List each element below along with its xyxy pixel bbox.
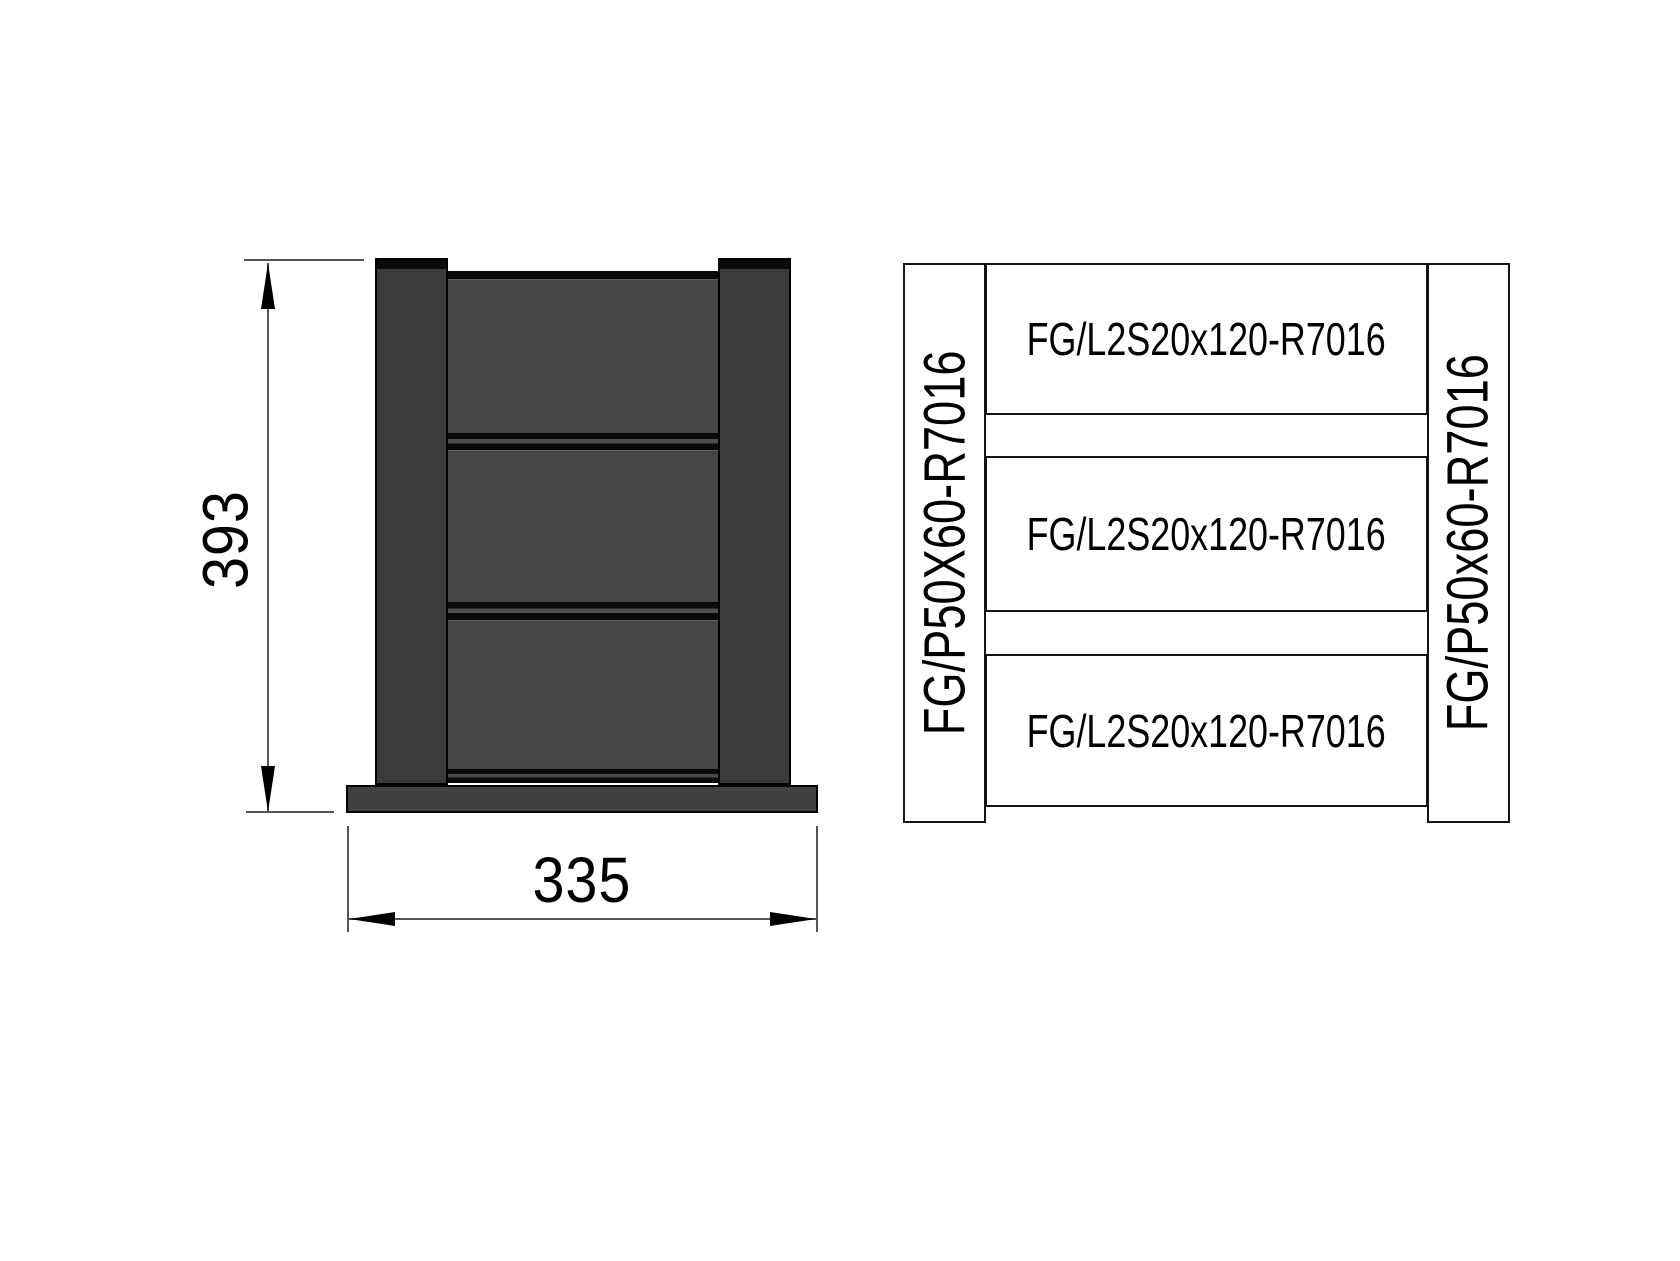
dim-width-arrow-right-icon bbox=[770, 912, 816, 926]
dim-width-line bbox=[348, 918, 816, 920]
schematic-post-right-label: FG/P50x60-R7016 bbox=[1427, 263, 1510, 823]
elevation-base-plate bbox=[346, 785, 818, 813]
schematic-rail-2: FG/L2S20x120-R7016 bbox=[985, 456, 1428, 612]
elevation-post-right bbox=[718, 258, 791, 785]
elevation-view: 393 335 bbox=[0, 0, 840, 960]
dim-width-arrow-left-icon bbox=[349, 912, 395, 926]
elevation-board-1 bbox=[448, 279, 718, 433]
dim-height-value: 393 bbox=[191, 491, 261, 590]
elevation-rail-2 bbox=[448, 602, 718, 620]
schematic-rail-1-label: FG/L2S20x120-R7016 bbox=[976, 312, 1436, 366]
dim-width-value: 335 bbox=[533, 849, 632, 911]
schematic-rail-1: FG/L2S20x120-R7016 bbox=[985, 263, 1428, 415]
dim-width-extension-right bbox=[816, 826, 818, 932]
elevation-post-left bbox=[375, 258, 448, 785]
schematic-rail-3: FG/L2S20x120-R7016 bbox=[985, 654, 1428, 807]
dim-height-arrow-up-icon bbox=[261, 263, 275, 309]
elevation-board-column bbox=[448, 271, 718, 783]
technical-drawing-canvas: 393 335 FG/L2S20x120-R7016 FG/L2S20x120-… bbox=[0, 0, 1680, 1261]
dim-height-line bbox=[267, 263, 269, 812]
post-cap-left bbox=[377, 260, 446, 269]
elevation-rail-1 bbox=[448, 433, 718, 450]
elevation-board-2 bbox=[448, 450, 718, 602]
elevation-bottom-rail bbox=[448, 769, 718, 783]
dim-height-arrow-down-icon bbox=[261, 766, 275, 812]
schematic-view: FG/L2S20x120-R7016 FG/L2S20x120-R7016 FG… bbox=[840, 0, 1680, 960]
dim-height-extension-top bbox=[244, 259, 364, 261]
post-cap-right bbox=[720, 260, 789, 269]
schematic-post-left-label: FG/P50X60-R7016 bbox=[904, 263, 987, 823]
dim-height-label: 393 bbox=[191, 463, 261, 618]
elevation-board-3 bbox=[448, 620, 718, 769]
schematic-rail-2-label: FG/L2S20x120-R7016 bbox=[976, 507, 1436, 561]
dim-width-label: 335 bbox=[482, 849, 682, 911]
dim-height-extension-bottom bbox=[246, 811, 334, 813]
schematic-rail-3-label: FG/L2S20x120-R7016 bbox=[976, 704, 1436, 758]
elevation-top-rail bbox=[448, 271, 718, 279]
